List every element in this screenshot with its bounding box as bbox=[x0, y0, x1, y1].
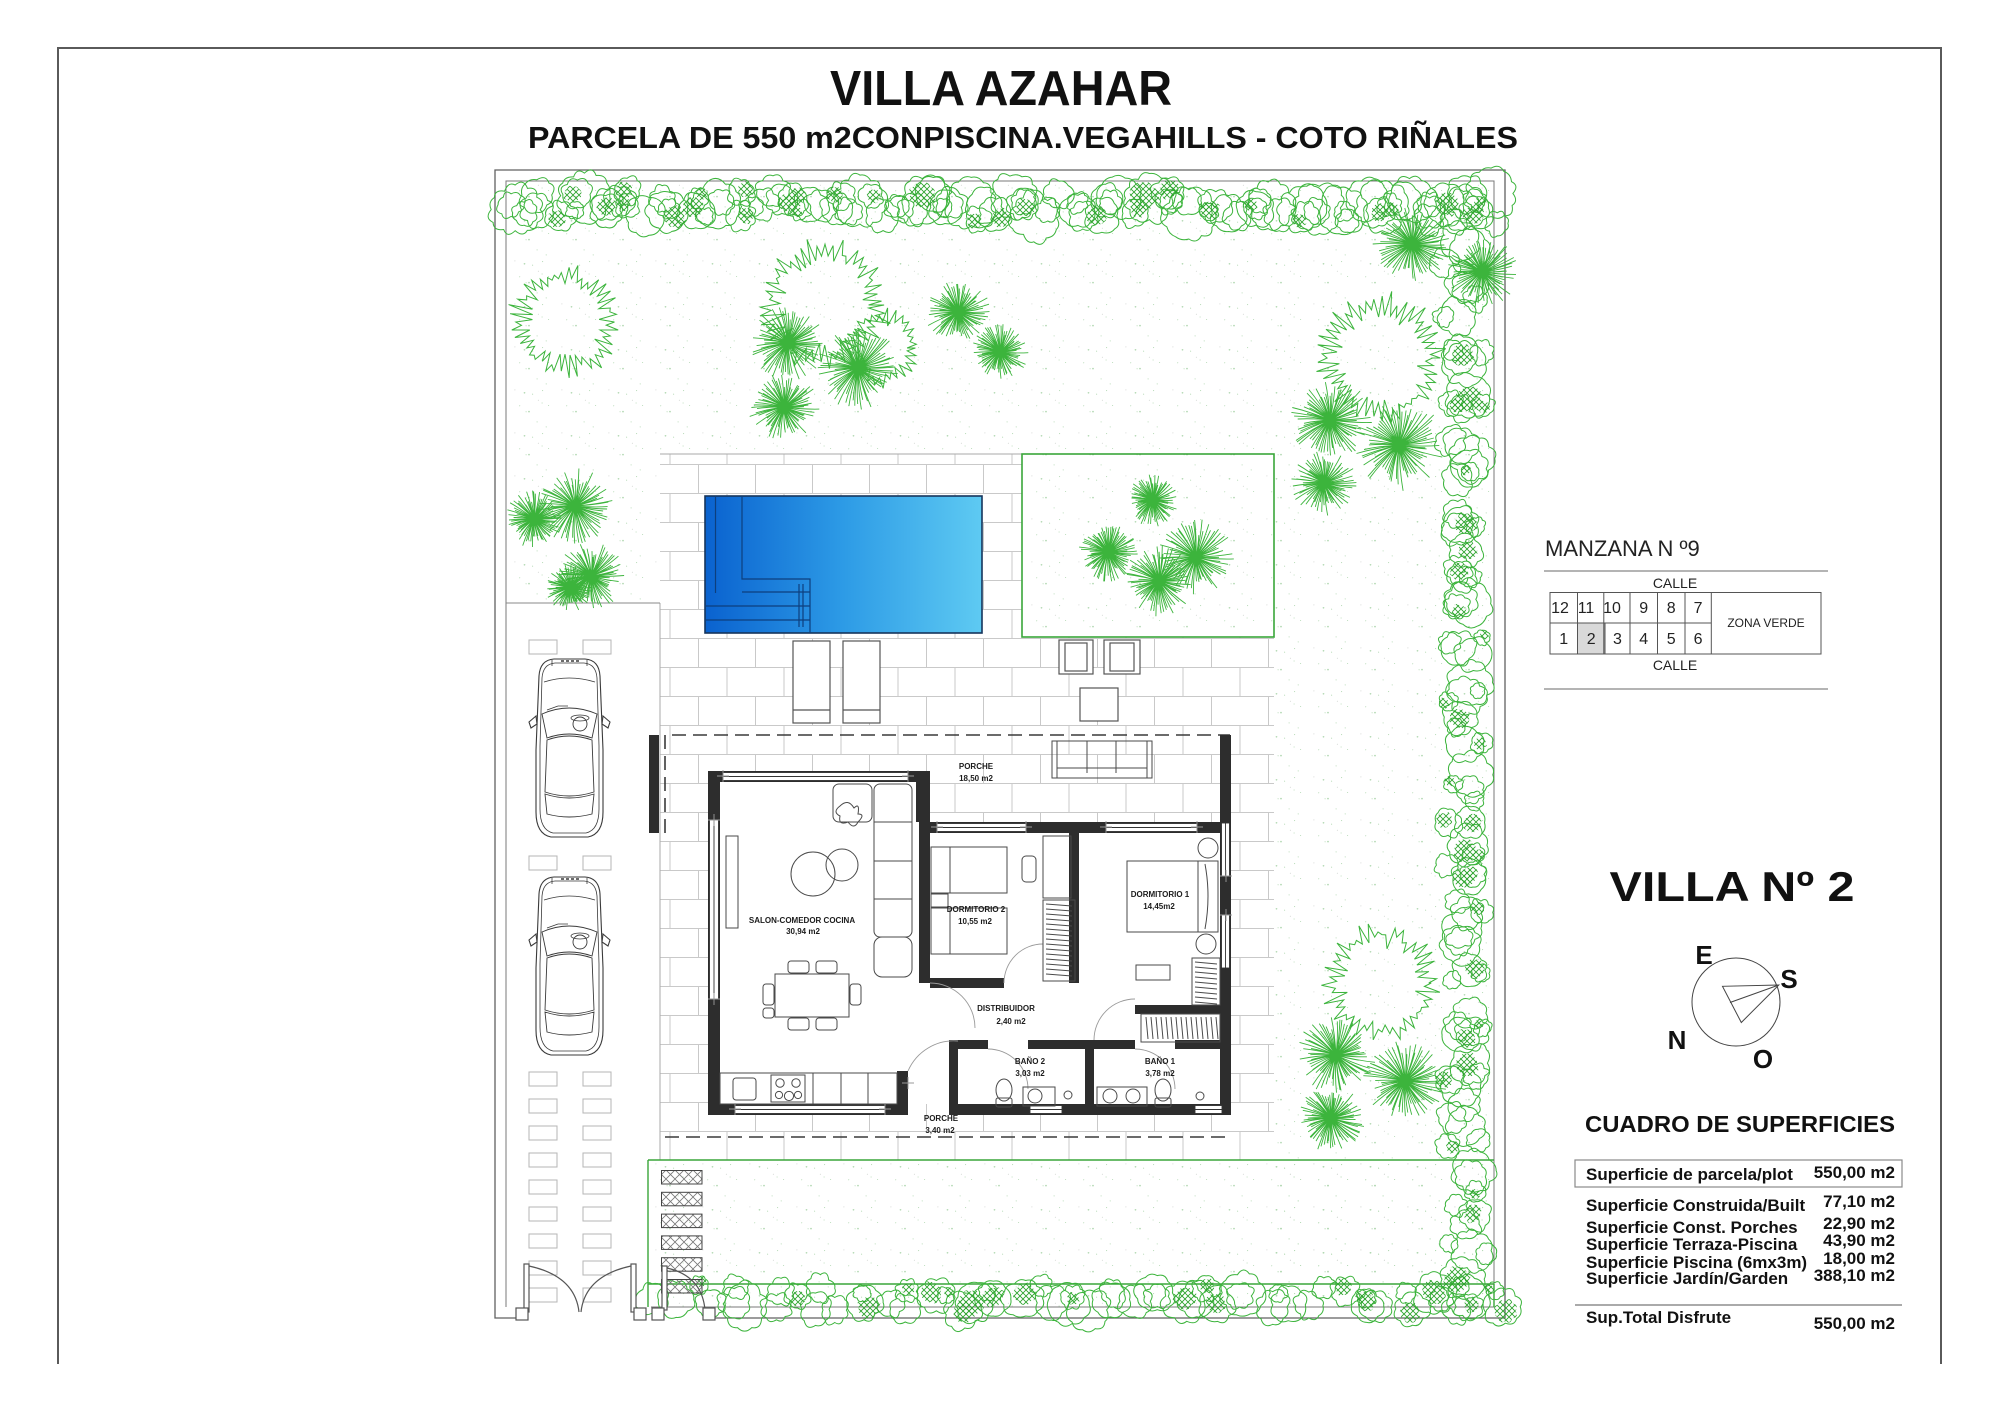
svg-text:43,90 m2: 43,90 m2 bbox=[1823, 1231, 1895, 1250]
svg-text:550,00 m2: 550,00 m2 bbox=[1814, 1314, 1895, 1333]
svg-text:S: S bbox=[1780, 964, 1797, 994]
svg-text:12: 12 bbox=[1551, 600, 1569, 617]
svg-text:ZONA VERDE: ZONA VERDE bbox=[1727, 616, 1804, 630]
svg-text:E: E bbox=[1695, 940, 1712, 970]
svg-text:BAÑO 1: BAÑO 1 bbox=[1145, 1057, 1176, 1066]
svg-text:PORCHE: PORCHE bbox=[924, 1114, 959, 1123]
svg-text:11: 11 bbox=[1578, 600, 1595, 617]
svg-text:3: 3 bbox=[1613, 631, 1622, 648]
svg-text:N: N bbox=[1668, 1025, 1687, 1055]
svg-text:SALON-COMEDOR COCINA: SALON-COMEDOR COCINA bbox=[749, 916, 855, 925]
svg-text:CUADRO DE SUPERFICIES: CUADRO DE SUPERFICIES bbox=[1585, 1111, 1895, 1137]
svg-text:VILLA AZAHAR: VILLA AZAHAR bbox=[830, 62, 1172, 116]
svg-text:6: 6 bbox=[1694, 631, 1703, 648]
svg-text:14,45m2: 14,45m2 bbox=[1143, 902, 1175, 911]
svg-text:PORCHE: PORCHE bbox=[959, 762, 994, 771]
svg-text:550,00 m2: 550,00 m2 bbox=[1814, 1163, 1895, 1182]
svg-text:Superficie de parcela/plot: Superficie de parcela/plot bbox=[1586, 1165, 1793, 1184]
svg-text:BAÑO 2: BAÑO 2 bbox=[1015, 1057, 1046, 1066]
svg-text:DORMITORIO 2: DORMITORIO 2 bbox=[947, 905, 1006, 914]
svg-text:3,03 m2: 3,03 m2 bbox=[1015, 1069, 1045, 1078]
svg-text:CALLE: CALLE bbox=[1653, 575, 1697, 591]
svg-text:388,10 m2: 388,10 m2 bbox=[1814, 1266, 1895, 1285]
svg-text:CALLE: CALLE bbox=[1653, 657, 1697, 673]
svg-text:8: 8 bbox=[1667, 600, 1676, 617]
svg-text:10: 10 bbox=[1603, 600, 1621, 617]
svg-text:18,50 m2: 18,50 m2 bbox=[959, 774, 993, 783]
svg-text:4: 4 bbox=[1639, 631, 1648, 648]
svg-text:5: 5 bbox=[1667, 631, 1676, 648]
svg-text:PARCELA DE 550 m2CONPISCINA.VE: PARCELA DE 550 m2CONPISCINA.VEGAHILLS - … bbox=[528, 120, 1518, 155]
svg-text:Superficie Construida/Built: Superficie Construida/Built bbox=[1586, 1196, 1805, 1215]
svg-text:1: 1 bbox=[1559, 631, 1568, 648]
svg-text:O: O bbox=[1753, 1044, 1773, 1074]
svg-text:30,94 m2: 30,94 m2 bbox=[786, 927, 820, 936]
svg-text:3,78 m2: 3,78 m2 bbox=[1145, 1069, 1175, 1078]
svg-text:3,40 m2: 3,40 m2 bbox=[925, 1126, 955, 1135]
svg-text:2: 2 bbox=[1587, 631, 1596, 648]
svg-text:Sup.Total Disfrute: Sup.Total Disfrute bbox=[1586, 1308, 1731, 1327]
svg-text:VILLA Nº 2: VILLA Nº 2 bbox=[1610, 863, 1855, 910]
svg-text:9: 9 bbox=[1639, 600, 1648, 617]
svg-text:DORMITORIO 1: DORMITORIO 1 bbox=[1131, 890, 1190, 899]
svg-text:10,55 m2: 10,55 m2 bbox=[958, 917, 992, 926]
svg-text:2,40 m2: 2,40 m2 bbox=[996, 1017, 1026, 1026]
svg-text:MANZANA N º9: MANZANA N º9 bbox=[1545, 536, 1700, 561]
svg-text:Superficie Terraza-Piscina: Superficie Terraza-Piscina bbox=[1586, 1235, 1798, 1254]
svg-text:Superficie Jardín/Garden: Superficie Jardín/Garden bbox=[1586, 1269, 1788, 1288]
svg-text:7: 7 bbox=[1694, 600, 1703, 617]
svg-text:DISTRIBUIDOR: DISTRIBUIDOR bbox=[977, 1004, 1035, 1013]
svg-text:77,10 m2: 77,10 m2 bbox=[1823, 1192, 1895, 1211]
